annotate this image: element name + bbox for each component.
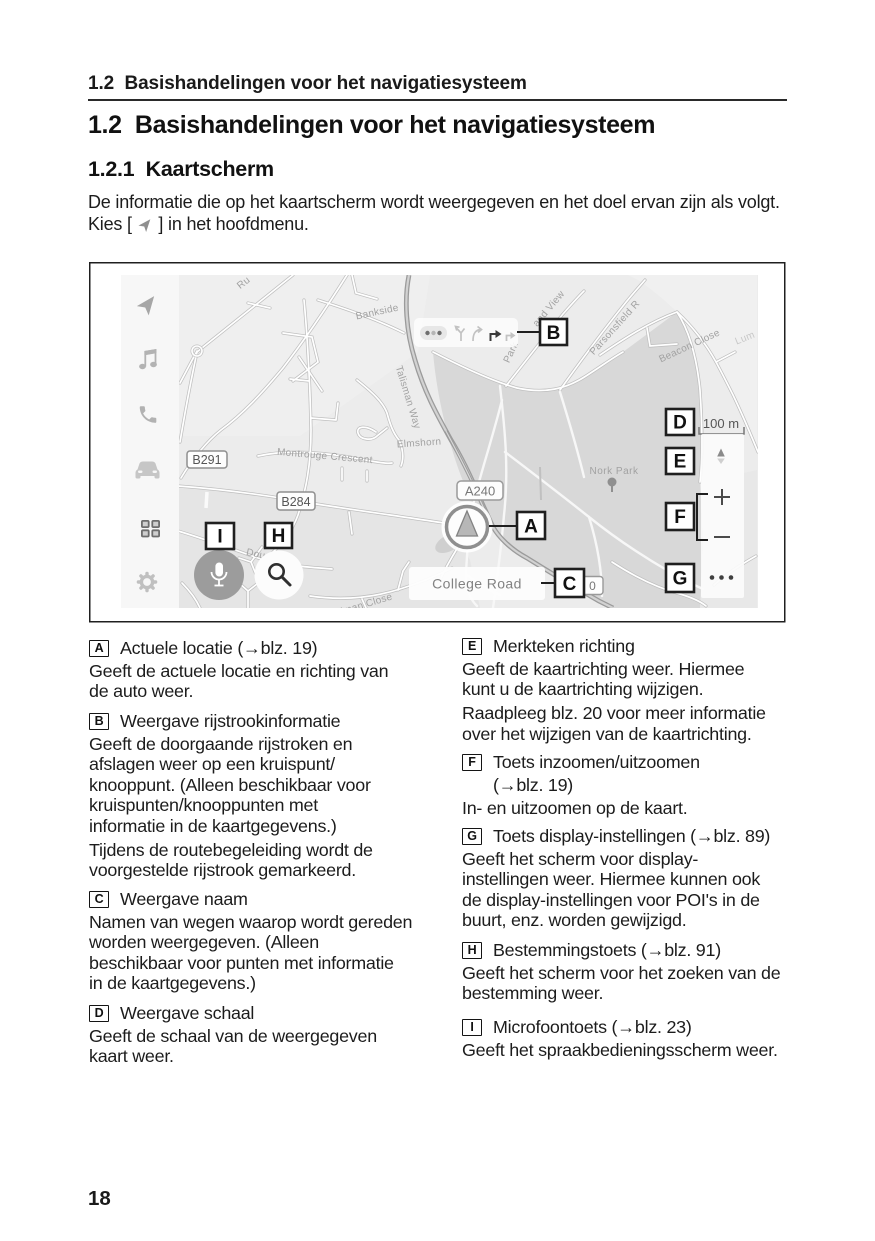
svg-text:B291: B291: [192, 453, 221, 467]
svg-text:Nork Park: Nork Park: [590, 466, 639, 477]
svg-text:H: H: [272, 526, 286, 547]
svg-text:G: G: [673, 569, 688, 590]
svg-text:D: D: [673, 413, 687, 434]
svg-text:B: B: [547, 323, 561, 344]
svg-text:B284: B284: [281, 495, 310, 509]
svg-text:A: A: [524, 517, 538, 538]
svg-text:0: 0: [589, 579, 596, 593]
svg-text:A240: A240: [465, 484, 495, 499]
svg-text:C: C: [563, 574, 577, 595]
svg-text:College Road: College Road: [432, 576, 522, 592]
svg-text:E: E: [674, 452, 687, 473]
svg-text:100 m: 100 m: [703, 416, 739, 431]
svg-text:I: I: [217, 527, 222, 548]
svg-text:F: F: [674, 507, 686, 528]
